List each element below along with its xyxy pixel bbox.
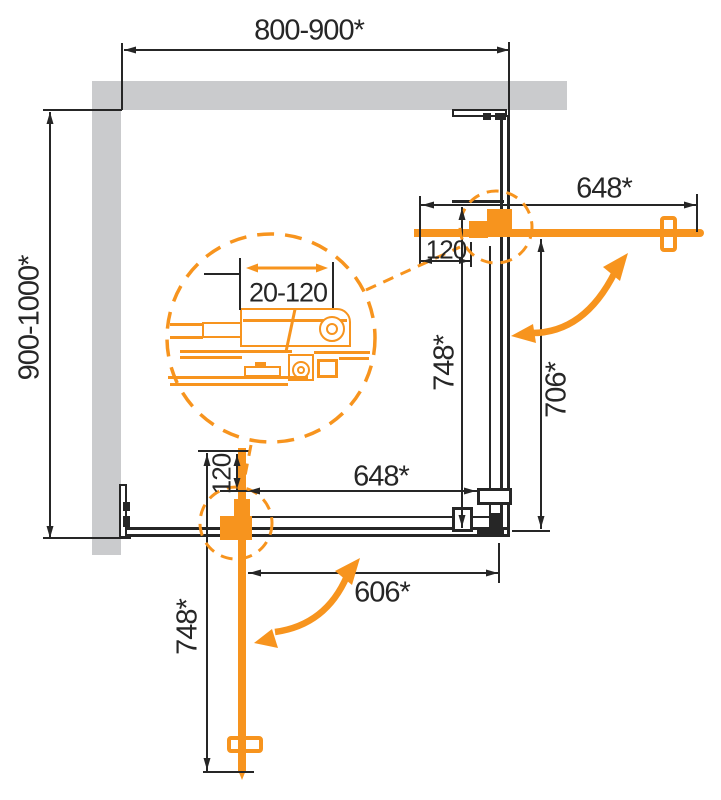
- dim-detail-adjustment-range: 20-120: [249, 278, 327, 309]
- extension-line: [121, 43, 123, 110]
- door-handle-bottom: [227, 736, 263, 753]
- wall-top: [92, 81, 567, 110]
- dim-bottom-pivot-offset: 120: [207, 454, 238, 494]
- dim-bottom-panel-width: 648*: [353, 461, 409, 494]
- detail-line: [314, 351, 370, 354]
- dim-bottom-door-length: 748*: [172, 599, 205, 655]
- detail-line: [180, 350, 292, 353]
- dim-right-door-length: 648*: [576, 173, 632, 206]
- dimension-line: [421, 204, 697, 206]
- wall-profile-left: [119, 484, 127, 538]
- dim-overall-width: 800-900*: [254, 15, 364, 48]
- extension-line: [332, 262, 334, 308]
- dim-right-panel-height: 748*: [429, 335, 462, 391]
- door-handle-right: [660, 216, 677, 252]
- extension-line: [204, 273, 240, 275]
- door-hinge-right-block-b: [469, 221, 488, 238]
- door-closed-position-line-right: [489, 246, 491, 514]
- door-swing-arrow-right: [511, 253, 628, 343]
- extension-line: [470, 242, 472, 267]
- corner-bracket-horizontal: [477, 528, 504, 537]
- extension-line: [419, 196, 421, 264]
- glass-panel-right-inner-line: [507, 115, 510, 537]
- dimension-line: [124, 49, 509, 51]
- detail-line: [339, 357, 369, 360]
- dim-right-pivot-offset: 120: [426, 235, 466, 266]
- detail-line: [170, 383, 288, 386]
- extension-line: [512, 530, 550, 532]
- extension-line: [239, 258, 241, 310]
- extension-line: [43, 109, 122, 111]
- wall-profile-left-tooth: [123, 516, 130, 527]
- glass-panel-right-outer-line: [500, 115, 503, 537]
- dimension-line: [248, 572, 499, 574]
- detail-adjustment-arrow: [246, 264, 328, 273]
- detail-wall-bar: [202, 322, 242, 338]
- extension-line: [43, 537, 131, 539]
- wall-profile-top-tooth: [483, 113, 491, 120]
- corner-clamp-vertical: [477, 488, 512, 505]
- dimension-line: [206, 453, 208, 771]
- extension-line: [498, 543, 500, 583]
- detail-line: [170, 336, 203, 339]
- extension-line: [696, 194, 698, 232]
- detail-right-block: [317, 359, 338, 378]
- door-hinge-bottom-block-b: [220, 516, 252, 540]
- extension-line: [508, 42, 510, 138]
- door-panel-bottom: [238, 448, 246, 771]
- extension-line: [203, 771, 254, 773]
- wall-left: [92, 81, 121, 555]
- wall-profile-left-tooth: [123, 502, 130, 511]
- shower-enclosure-plan-drawing: 800-900* 900-1000* 648* 120 748* 706*: [0, 0, 721, 800]
- detail-line: [170, 323, 203, 326]
- detail-line: [180, 356, 242, 359]
- extension-line: [452, 200, 504, 203]
- dimension-arrowheads: [47, 47, 697, 771]
- detail-knob-inner: [326, 323, 338, 335]
- detail-line: [168, 376, 308, 379]
- detail-gear-inner: [297, 366, 305, 374]
- dim-bottom-opening-width: 606*: [354, 577, 410, 610]
- dim-overall-depth: 900-1000*: [14, 256, 47, 381]
- wall-profile-top-tooth: [495, 113, 506, 120]
- extension-line: [198, 450, 250, 452]
- dim-right-opening-height: 706*: [541, 362, 574, 418]
- door-hinge-right-block-a: [487, 209, 512, 233]
- glass-panel-bottom-inner-line: [126, 534, 510, 537]
- dimension-line: [49, 112, 51, 538]
